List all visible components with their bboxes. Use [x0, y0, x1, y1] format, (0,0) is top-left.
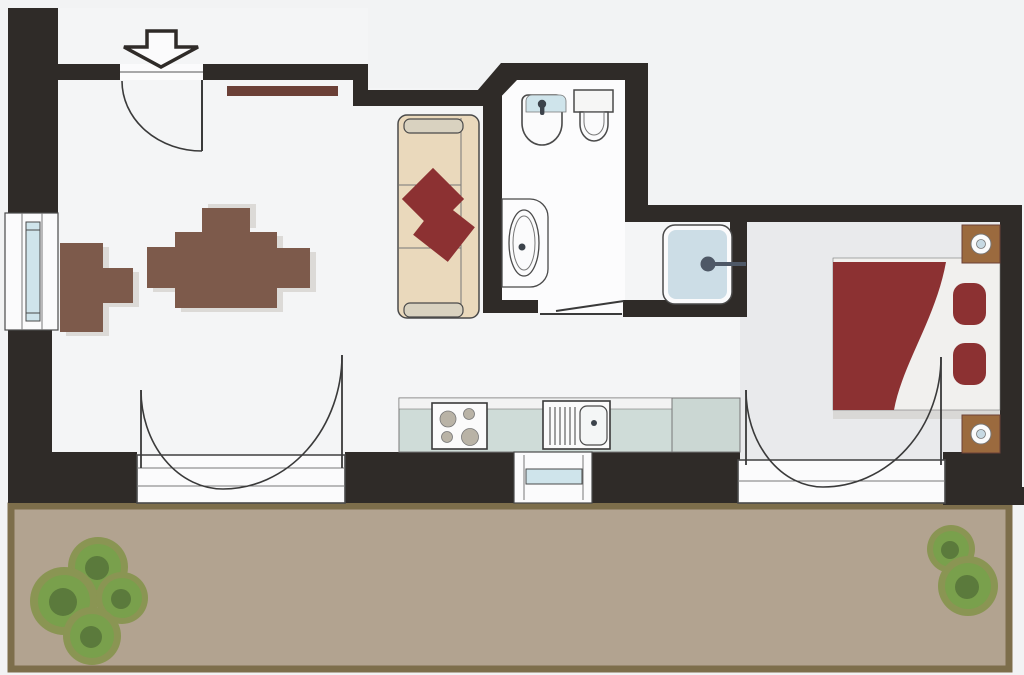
living-door-sill: [137, 455, 345, 503]
wall-bath-left: [483, 92, 502, 313]
wall-left-upper: [8, 8, 58, 213]
left-window: [5, 213, 58, 330]
burner-1: [440, 411, 456, 427]
bedroom: [833, 225, 1000, 453]
dining-chair-top: [202, 208, 250, 232]
terrace-floor: [8, 503, 1012, 672]
bush: [938, 556, 998, 616]
nightstand-bottom: [962, 415, 1000, 453]
wall-bottom-mid-right: [590, 452, 740, 503]
wall-top-left: [58, 64, 120, 80]
left-window-glass: [26, 222, 40, 321]
wall-top-mid: [203, 64, 368, 80]
bed-pillow-top: [953, 283, 986, 325]
stove: [432, 403, 487, 449]
wall-bedroom-top: [648, 205, 1002, 222]
wall-step: [353, 64, 368, 106]
sink-drain: [519, 244, 526, 251]
burner-4: [462, 429, 479, 446]
wall-lowered: [368, 90, 478, 106]
bed-pillow-bottom: [953, 343, 986, 385]
lamp-bottom-inner: [977, 430, 986, 439]
sofa-armrest-bottom: [404, 303, 463, 317]
kitchen-window-glass: [526, 469, 582, 484]
shower-head: [701, 257, 716, 272]
dining-chair-right: [277, 248, 310, 288]
kitchen: [399, 398, 740, 452]
kitchen-window: [514, 452, 592, 503]
wall-right: [1000, 205, 1022, 505]
stove-top: [432, 403, 487, 449]
wall-shelf: [227, 86, 338, 96]
dining-chair-left: [147, 247, 175, 288]
wall-bottom-left-corner: [8, 452, 137, 503]
sofa-armrest-top: [404, 119, 463, 133]
floor-plan-canvas: [0, 0, 1024, 675]
sink-faucet-dot: [591, 420, 597, 426]
burner-2: [464, 409, 475, 420]
bathroom-sink: [502, 199, 548, 287]
wall-bottom-mid-left: [345, 452, 516, 503]
nightstand-top: [962, 225, 1000, 263]
bush: [63, 607, 121, 665]
sofa: [398, 115, 479, 318]
bidet-faucet-stem: [540, 104, 544, 115]
lamp-top-inner: [977, 240, 986, 249]
wall-bath-right: [625, 63, 648, 222]
dining-table: [175, 232, 277, 308]
wall-bath-bottom-left: [483, 300, 538, 313]
kitchen-sink: [543, 401, 610, 449]
kitchen-cabinet-right: [672, 398, 740, 452]
wall-bottom-right-strip: [943, 487, 1024, 505]
armchair: [60, 243, 103, 332]
armchair-arm: [103, 268, 133, 303]
floor-plan-drawing: [0, 0, 1024, 675]
toilet-tank: [574, 90, 613, 112]
burner-3: [442, 432, 453, 443]
terrace: [8, 503, 1012, 672]
